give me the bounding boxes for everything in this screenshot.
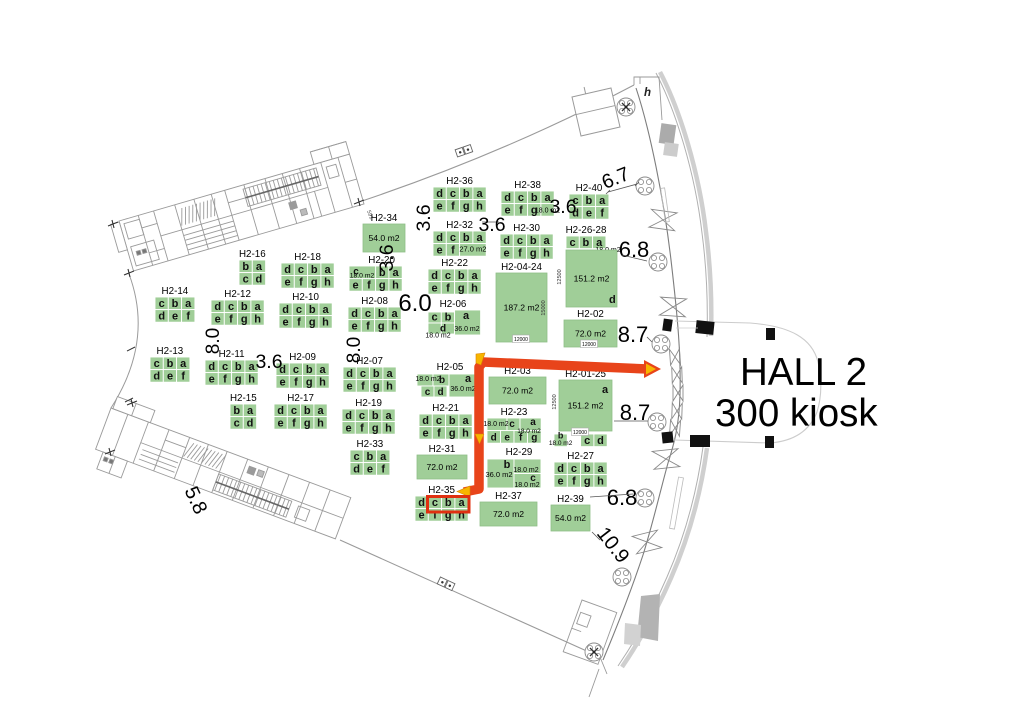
svg-text:e: e: [209, 374, 215, 386]
svg-text:12500: 12500: [552, 394, 558, 409]
svg-text:c: c: [359, 410, 365, 422]
svg-text:H2-05: H2-05: [437, 362, 464, 373]
svg-text:h: h: [322, 317, 329, 329]
svg-text:c: c: [450, 188, 456, 200]
svg-text:d: d: [282, 304, 289, 316]
svg-text:b: b: [233, 405, 240, 417]
svg-text:3.6: 3.6: [413, 204, 435, 231]
svg-text:d: d: [422, 415, 429, 427]
svg-text:g: g: [373, 381, 380, 393]
svg-text:H2-39: H2-39: [557, 494, 584, 505]
svg-text:h: h: [324, 277, 331, 289]
svg-text:h: h: [391, 321, 398, 333]
svg-text:3.6: 3.6: [376, 244, 398, 271]
svg-text:c: c: [293, 364, 299, 376]
svg-text:c: c: [436, 415, 442, 427]
svg-text:3.6: 3.6: [255, 351, 282, 373]
svg-text:18.0 m2: 18.0 m2: [514, 482, 539, 489]
svg-text:b: b: [242, 261, 249, 273]
svg-text:e: e: [172, 311, 178, 323]
svg-text:c: c: [243, 274, 249, 286]
svg-text:d: d: [353, 464, 360, 476]
svg-text:g: g: [463, 201, 470, 213]
svg-text:b: b: [445, 312, 452, 324]
svg-text:d: d: [597, 435, 604, 447]
svg-text:e: e: [283, 317, 289, 329]
svg-text:d: d: [431, 270, 438, 282]
svg-text:b: b: [172, 298, 179, 310]
svg-text:h: h: [462, 428, 469, 440]
svg-text:c: c: [296, 304, 302, 316]
svg-text:151.2 m2: 151.2 m2: [568, 401, 604, 411]
svg-text:H2-33: H2-33: [357, 439, 384, 450]
svg-text:H2-38: H2-38: [514, 180, 541, 191]
svg-text:f: f: [181, 371, 185, 383]
svg-text:HALL 2: HALL 2: [740, 351, 867, 394]
svg-text:c: c: [584, 435, 590, 447]
svg-text:h: h: [317, 418, 324, 430]
svg-text:a: a: [322, 304, 329, 316]
svg-text:d: d: [491, 433, 497, 444]
svg-text:a: a: [462, 415, 469, 427]
svg-text:d: d: [214, 301, 221, 313]
svg-text:H2-06: H2-06: [440, 299, 467, 310]
svg-text:b: b: [378, 308, 385, 320]
svg-text:e: e: [167, 371, 173, 383]
svg-text:d: d: [277, 405, 284, 417]
svg-text:f: f: [367, 280, 371, 292]
svg-text:H2-19: H2-19: [355, 398, 382, 409]
svg-text:c: c: [450, 232, 456, 244]
svg-text:b: b: [167, 358, 174, 370]
svg-text:h: h: [644, 87, 651, 99]
svg-text:H2-17: H2-17: [287, 393, 314, 404]
svg-text:c: c: [445, 270, 451, 282]
svg-text:e: e: [423, 428, 429, 440]
svg-text:b: b: [586, 195, 593, 207]
svg-text:c: c: [517, 235, 523, 247]
svg-text:6.8: 6.8: [607, 485, 638, 510]
svg-text:c: c: [159, 298, 165, 310]
svg-text:a: a: [530, 417, 536, 428]
svg-text:g: g: [306, 377, 313, 389]
svg-text:b: b: [449, 415, 456, 427]
svg-text:g: g: [235, 374, 242, 386]
svg-text:b: b: [439, 375, 445, 386]
svg-text:d: d: [503, 235, 510, 247]
svg-text:187.2 m2: 187.2 m2: [504, 303, 540, 313]
svg-text:f: f: [446, 283, 450, 295]
svg-text:b: b: [304, 405, 311, 417]
svg-text:a: a: [256, 261, 263, 273]
svg-text:e: e: [419, 510, 425, 522]
svg-text:h: h: [248, 374, 255, 386]
svg-text:b: b: [367, 451, 374, 463]
svg-text:54.0 m2: 54.0 m2: [555, 513, 586, 523]
svg-text:f: f: [360, 423, 364, 435]
svg-text:H2-12: H2-12: [224, 289, 251, 300]
svg-text:c: c: [518, 192, 524, 204]
svg-text:18.0 m2: 18.0 m2: [483, 421, 508, 428]
svg-text:e: e: [437, 201, 443, 213]
svg-text:54.0 m2: 54.0 m2: [368, 233, 399, 243]
svg-text:e: e: [347, 381, 353, 393]
svg-text:e: e: [437, 245, 443, 257]
svg-text:8.0: 8.0: [344, 337, 365, 363]
svg-text:12500: 12500: [557, 269, 563, 284]
svg-text:e: e: [352, 321, 358, 333]
svg-text:b: b: [235, 361, 242, 373]
svg-text:a: a: [385, 410, 392, 422]
svg-text:e: e: [504, 433, 510, 444]
svg-text:b: b: [463, 188, 470, 200]
svg-text:c: c: [425, 387, 431, 398]
svg-text:d: d: [436, 232, 443, 244]
svg-text:8.0: 8.0: [203, 328, 224, 354]
svg-text:e: e: [215, 314, 221, 326]
svg-text:H2-02: H2-02: [577, 309, 604, 320]
svg-text:h: h: [597, 476, 604, 488]
svg-text:H2-08: H2-08: [361, 296, 388, 307]
svg-text:b: b: [558, 431, 564, 441]
svg-text:h: h: [471, 283, 478, 295]
svg-text:b: b: [306, 364, 313, 376]
svg-text:g: g: [449, 428, 456, 440]
svg-text:f: f: [229, 314, 233, 326]
svg-text:H2-34: H2-34: [371, 213, 398, 224]
svg-text:12000: 12000: [582, 342, 596, 348]
svg-text:12000: 12000: [514, 337, 528, 343]
svg-text:b: b: [311, 264, 318, 276]
svg-text:15000: 15000: [541, 300, 547, 315]
svg-text:g: g: [241, 314, 248, 326]
svg-text:h: h: [386, 381, 393, 393]
svg-text:c: c: [365, 308, 371, 320]
svg-text:d: d: [345, 410, 352, 422]
svg-text:g: g: [530, 248, 537, 260]
svg-text:e: e: [278, 418, 284, 430]
svg-text:g: g: [372, 423, 379, 435]
svg-text:H2-18: H2-18: [294, 252, 321, 263]
svg-text:27.0 m2: 27.0 m2: [459, 245, 486, 254]
svg-text:a: a: [386, 368, 393, 380]
svg-text:a: a: [319, 364, 326, 376]
svg-text:e: e: [280, 377, 286, 389]
svg-text:g: g: [458, 283, 465, 295]
svg-text:f: f: [437, 428, 441, 440]
svg-text:c: c: [228, 301, 234, 313]
svg-text:H2-21: H2-21: [432, 403, 459, 414]
svg-text:b: b: [458, 270, 465, 282]
svg-text:f: f: [223, 374, 227, 386]
svg-text:a: a: [380, 451, 387, 463]
svg-text:f: f: [518, 248, 522, 260]
svg-text:b: b: [530, 235, 537, 247]
svg-text:e: e: [558, 476, 564, 488]
svg-text:c: c: [234, 418, 240, 430]
svg-text:36.0 m2: 36.0 m2: [450, 386, 475, 393]
svg-text:f: f: [186, 311, 190, 323]
svg-text:g: g: [304, 418, 311, 430]
svg-text:a: a: [465, 373, 472, 385]
svg-text:H2-31: H2-31: [429, 444, 456, 455]
svg-text:H2-29: H2-29: [506, 447, 533, 458]
svg-text:f: f: [451, 201, 455, 213]
svg-text:h: h: [476, 201, 483, 213]
svg-text:c: c: [432, 497, 438, 509]
svg-text:H2-30: H2-30: [513, 223, 540, 234]
svg-text:f: f: [292, 418, 296, 430]
svg-text:d: d: [153, 371, 160, 383]
svg-text:a: a: [255, 301, 262, 313]
svg-text:c: c: [354, 451, 360, 463]
svg-text:d: d: [557, 463, 564, 475]
svg-text:g: g: [309, 317, 316, 329]
svg-text:b: b: [584, 463, 591, 475]
svg-text:72.0 m2: 72.0 m2: [502, 386, 533, 396]
svg-text:H2-15: H2-15: [230, 393, 257, 404]
svg-text:a: a: [471, 270, 478, 282]
svg-text:H2-16: H2-16: [239, 249, 266, 260]
svg-text:d: d: [351, 308, 358, 320]
svg-text:b: b: [241, 301, 248, 313]
svg-text:h: h: [254, 314, 261, 326]
svg-text:H2-37: H2-37: [495, 491, 522, 502]
svg-text:b: b: [309, 304, 316, 316]
svg-text:f: f: [297, 317, 301, 329]
svg-text:c: c: [509, 419, 515, 430]
svg-text:300 kiosk: 300 kiosk: [715, 392, 878, 435]
svg-text:h: h: [543, 248, 550, 260]
svg-text:H2-40: H2-40: [576, 183, 603, 194]
svg-text:a: a: [317, 405, 324, 417]
svg-text:d: d: [284, 264, 291, 276]
svg-text:a: a: [543, 235, 550, 247]
svg-text:H2-22: H2-22: [441, 258, 468, 269]
svg-text:H2-26-28: H2-26-28: [566, 225, 607, 236]
svg-text:H2-13: H2-13: [157, 346, 184, 357]
svg-text:f: f: [361, 381, 365, 393]
svg-text:g: g: [311, 277, 318, 289]
svg-text:d: d: [436, 188, 443, 200]
svg-text:H2-35: H2-35: [428, 485, 455, 496]
svg-text:a: a: [247, 405, 254, 417]
svg-text:b: b: [373, 368, 380, 380]
svg-text:18.0 m2: 18.0 m2: [549, 440, 573, 447]
svg-text:6.0: 6.0: [398, 290, 431, 317]
svg-text:18.0 m2: 18.0 m2: [425, 333, 450, 340]
svg-text:a: a: [185, 298, 192, 310]
svg-text:d: d: [158, 311, 165, 323]
svg-text:c: c: [298, 264, 304, 276]
svg-text:b: b: [372, 410, 379, 422]
svg-text:g: g: [584, 476, 591, 488]
svg-text:a: a: [602, 384, 609, 396]
svg-text:H2-27: H2-27: [567, 451, 594, 462]
svg-text:e: e: [285, 277, 291, 289]
svg-text:h: h: [319, 377, 326, 389]
svg-text:f: f: [600, 208, 604, 220]
svg-text:e: e: [432, 283, 438, 295]
svg-text:c: c: [432, 312, 438, 324]
svg-text:a: a: [463, 310, 470, 322]
svg-text:f: f: [366, 321, 370, 333]
svg-text:d: d: [504, 192, 511, 204]
svg-text:g: g: [379, 280, 386, 292]
svg-text:b: b: [445, 497, 452, 509]
svg-text:a: a: [458, 497, 465, 509]
svg-text:a: a: [597, 463, 604, 475]
svg-text:c: c: [571, 463, 577, 475]
svg-text:e: e: [586, 208, 592, 220]
svg-text:d: d: [346, 368, 353, 380]
svg-text:f: f: [381, 464, 385, 476]
svg-text:b: b: [583, 237, 590, 249]
svg-text:d: d: [418, 497, 425, 509]
svg-text:36.0 m2: 36.0 m2: [454, 326, 479, 333]
svg-text:8.7: 8.7: [618, 322, 649, 347]
svg-text:151.2 m2: 151.2 m2: [574, 274, 610, 284]
svg-text:a: a: [476, 188, 483, 200]
svg-text:H2-10: H2-10: [292, 292, 319, 303]
svg-text:e: e: [353, 280, 359, 292]
svg-text:d: d: [609, 294, 616, 306]
svg-text:3.6: 3.6: [478, 214, 505, 236]
svg-text:d: d: [247, 418, 254, 430]
svg-text:f: f: [451, 245, 455, 257]
svg-text:H2-32: H2-32: [446, 220, 473, 231]
svg-text:c: c: [291, 405, 297, 417]
svg-text:12000: 12000: [573, 430, 587, 436]
svg-text:72.0 m2: 72.0 m2: [493, 509, 524, 519]
svg-text:e: e: [367, 464, 373, 476]
svg-text:H2-04-24: H2-04-24: [501, 262, 542, 273]
svg-text:72.0 m2: 72.0 m2: [575, 329, 606, 339]
svg-text:H2-14: H2-14: [162, 286, 189, 297]
svg-text:18.0 m2: 18.0 m2: [350, 273, 375, 280]
svg-text:b: b: [531, 192, 538, 204]
svg-text:a: a: [324, 264, 331, 276]
svg-text:b: b: [463, 232, 470, 244]
svg-text:d: d: [437, 387, 443, 398]
svg-text:c: c: [570, 237, 576, 249]
svg-text:H2-09: H2-09: [289, 352, 316, 363]
svg-text:d: d: [256, 274, 263, 286]
svg-text:H2-36: H2-36: [446, 176, 473, 187]
svg-text:a: a: [180, 358, 187, 370]
svg-text:36.0 m2: 36.0 m2: [485, 470, 512, 479]
svg-text:H2-23: H2-23: [501, 407, 528, 418]
svg-text:c: c: [154, 358, 160, 370]
svg-text:f: f: [299, 277, 303, 289]
svg-text:g: g: [531, 433, 537, 444]
svg-text:c: c: [360, 368, 366, 380]
svg-text:c: c: [222, 361, 228, 373]
svg-text:a: a: [599, 195, 606, 207]
svg-text:18.0 m2: 18.0 m2: [415, 376, 440, 383]
svg-text:e: e: [504, 248, 510, 260]
svg-text:3.6: 3.6: [549, 196, 576, 218]
svg-text:f: f: [572, 476, 576, 488]
svg-text:e: e: [346, 423, 352, 435]
svg-text:f: f: [519, 205, 523, 217]
svg-text:g: g: [378, 321, 385, 333]
svg-text:d: d: [208, 361, 215, 373]
svg-text:h: h: [385, 423, 392, 435]
svg-text:72.0 m2: 72.0 m2: [426, 462, 457, 472]
svg-text:f: f: [294, 377, 298, 389]
